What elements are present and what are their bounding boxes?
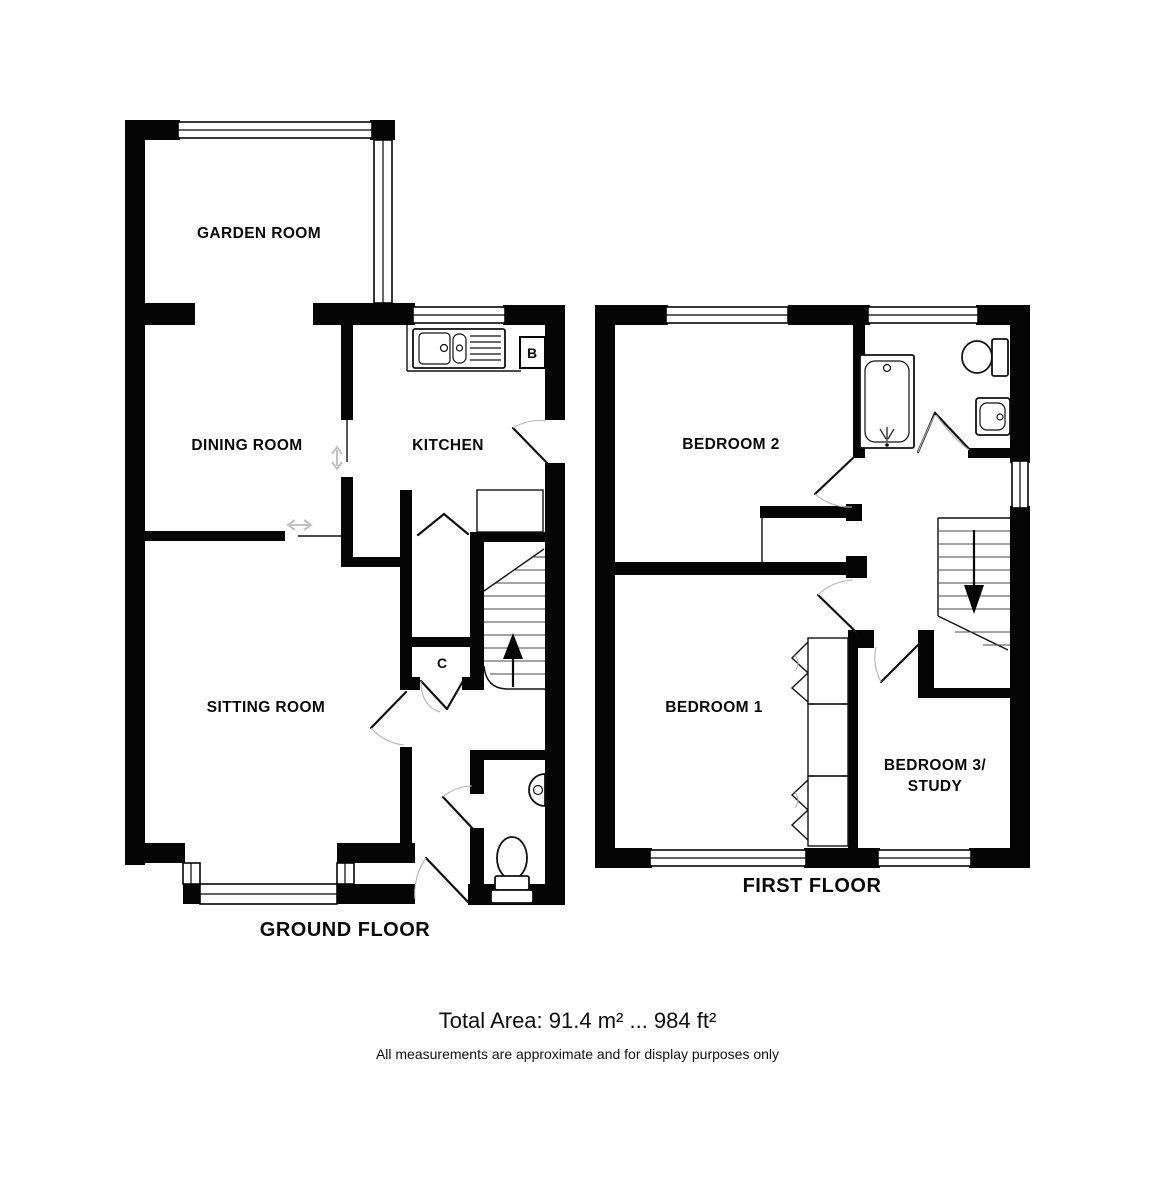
sliding-door-dining-kitchen <box>332 420 347 469</box>
first-floor-title: FIRST FLOOR <box>743 875 882 897</box>
bathroom-fixtures <box>860 339 1010 448</box>
ground-floor-walls <box>125 120 565 905</box>
kitchen-label: KITCHEN <box>412 437 484 454</box>
bay-window <box>183 863 354 904</box>
boiler-label: B <box>527 345 537 361</box>
boiler-box: B <box>520 337 545 368</box>
wc-door <box>443 786 474 830</box>
first-floor-plan: BEDROOM 2 BEDROOM 1 BEDROOM 3/ STUDY FIR… <box>595 305 1030 897</box>
stairs-up-arrow <box>503 633 523 687</box>
disclaimer-text: All measurements are approximate and for… <box>0 1046 1155 1062</box>
wc-basin <box>529 774 545 806</box>
staircase-down <box>938 518 1010 650</box>
staircase-up <box>477 490 545 689</box>
kitchen-bifold-door <box>418 514 468 535</box>
cupboard-door <box>421 681 463 712</box>
total-area-text: Total Area: 91.4 m² ... 984 ft² <box>0 1008 1155 1034</box>
bedroom2-window <box>666 307 788 323</box>
kitchen-sink <box>413 329 505 368</box>
bedroom3-label-line2: STUDY <box>908 778 963 795</box>
kitchen-window <box>413 307 505 323</box>
bedroom1-label: BEDROOM 1 <box>665 699 762 716</box>
floorplan-drawing: B GARDEN ROOM DINING ROOM KITCHEN SITTIN… <box>0 0 1155 980</box>
bedroom2-label: BEDROOM 2 <box>682 436 779 453</box>
floorplan-page: B GARDEN ROOM DINING ROOM KITCHEN SITTIN… <box>0 0 1155 1200</box>
sliding-door-dining-sitting <box>288 520 341 536</box>
sitting-room-door <box>371 692 406 745</box>
kitchen-side-door <box>513 421 548 464</box>
bedroom1-window <box>650 850 806 866</box>
bathtub <box>860 355 914 448</box>
garden-room-window-right <box>374 140 392 303</box>
sitting-room-label: SITTING ROOM <box>207 699 325 716</box>
cupboard-label: C <box>437 655 447 671</box>
dining-room-label: DINING ROOM <box>191 437 302 454</box>
bedroom1-door <box>818 580 856 632</box>
bedroom3-door <box>875 645 918 682</box>
bedroom1-wardrobes <box>792 638 848 846</box>
garden-room-label: GARDEN ROOM <box>197 225 321 242</box>
stairs-down-arrow <box>964 530 984 614</box>
bedroom3-window <box>878 850 971 866</box>
bathroom-sink <box>976 398 1010 435</box>
wc-toilet <box>491 837 533 903</box>
bedroom2-door <box>815 458 853 507</box>
bathroom-door <box>918 413 971 452</box>
landing-window <box>1012 461 1028 508</box>
first-floor-doors <box>815 413 971 682</box>
bedroom3-label-line1: BEDROOM 3/ <box>884 757 986 774</box>
ground-floor-plan: B GARDEN ROOM DINING ROOM KITCHEN SITTIN… <box>125 120 565 941</box>
bathroom-window <box>868 307 978 323</box>
bathroom-toilet <box>962 339 1008 376</box>
front-door <box>415 858 468 902</box>
garden-room-window-top <box>178 122 372 138</box>
ground-floor-title: GROUND FLOOR <box>260 919 430 941</box>
